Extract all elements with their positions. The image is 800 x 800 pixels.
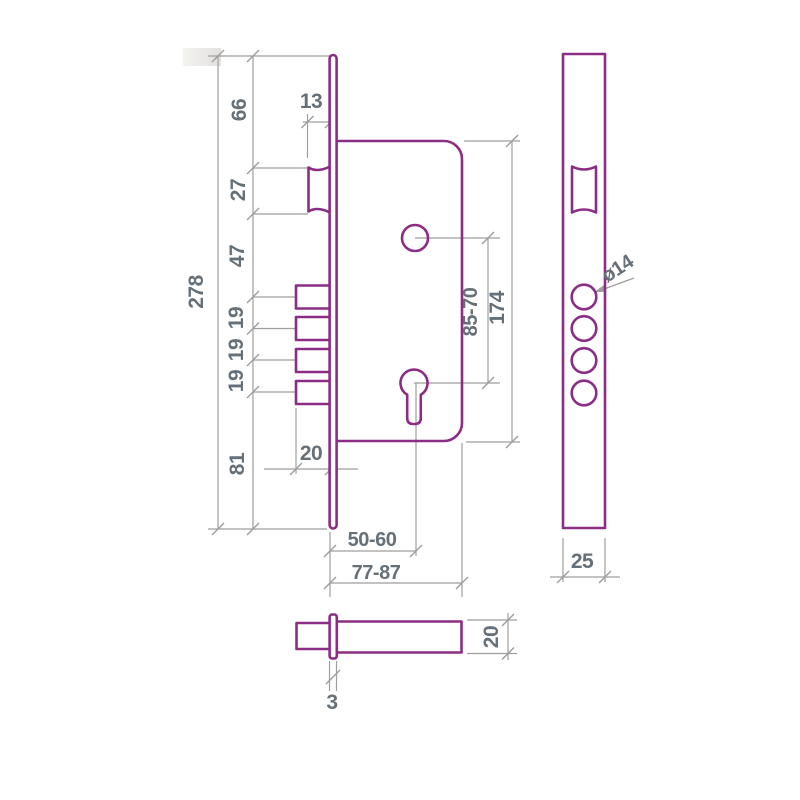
dim-overall-height: 278 xyxy=(185,274,208,308)
dim-pin-spacing-3: 19 xyxy=(225,370,248,392)
faceplate-section xyxy=(330,615,337,659)
dim-latch-to-first-pin: 47 xyxy=(226,245,249,267)
dim-faceplate-thickness: 3 xyxy=(326,691,337,714)
mortise-lock-drawing: 278 66 27 47 19 19 19 81 13 20 85-70 174… xyxy=(0,0,800,800)
background xyxy=(0,0,800,800)
dim-pin-protrusion: 20 xyxy=(300,442,322,465)
dim-faceplate-width: 25 xyxy=(571,550,594,573)
dim-latch-height: 27 xyxy=(227,179,250,201)
dim-body-height: 174 xyxy=(486,290,509,324)
dim-latch-protrusion: 13 xyxy=(300,90,322,113)
dim-body-depth: 77-87 xyxy=(352,562,401,584)
technical-drawing-page: 278 66 27 47 19 19 19 81 13 20 85-70 174… xyxy=(0,0,800,800)
dim-pin-spacing-1: 19 xyxy=(225,307,248,329)
faceplate-side-view xyxy=(330,55,337,529)
dim-backset: 50-60 xyxy=(348,529,397,551)
dim-body-thickness: 20 xyxy=(480,626,503,648)
dim-spindle-to-cylinder: 85-70 xyxy=(460,287,482,336)
dim-pin-spacing-2: 19 xyxy=(225,339,248,361)
scan-artifact xyxy=(183,48,221,66)
dim-top-to-latch: 66 xyxy=(228,99,251,121)
dim-last-pin-to-bottom: 81 xyxy=(226,452,249,475)
